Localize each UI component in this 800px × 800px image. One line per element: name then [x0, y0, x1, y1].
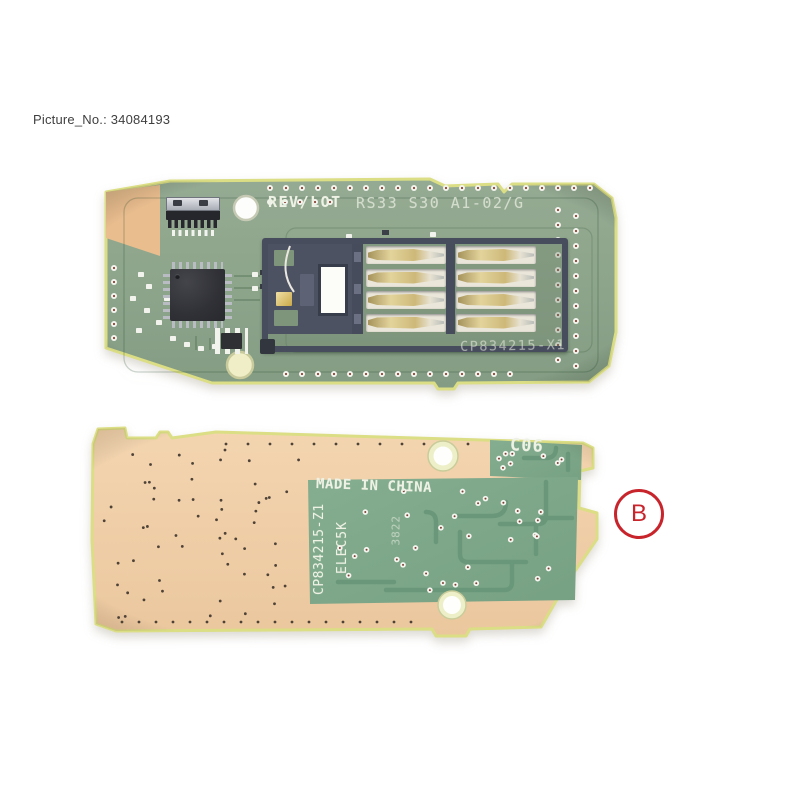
silkscreen-rev-lot-value: RS33 S30 A1-02/G	[356, 194, 525, 212]
contact-spring	[368, 249, 444, 261]
fpc-connector-pins	[168, 220, 218, 228]
silkscreen-part-number-back: CP834215-Z1	[312, 475, 330, 595]
screw-hole	[234, 196, 258, 220]
rail-notch	[354, 314, 361, 324]
sim-contact	[366, 291, 446, 309]
fpc-connector-pads	[172, 230, 214, 236]
sim-connector-rail	[446, 244, 455, 334]
contact-spring	[368, 294, 444, 306]
contact-spring	[368, 317, 444, 329]
connector-window	[318, 264, 348, 316]
chip-pin1-marker	[175, 274, 180, 279]
rail-notch	[354, 252, 361, 262]
sim-contact	[366, 269, 446, 287]
annotation-circle-b: B	[614, 489, 664, 539]
fpc-connector	[166, 197, 220, 239]
fpc-connector-shield	[166, 197, 220, 211]
sim-contact	[366, 314, 446, 332]
fpc-slot	[199, 200, 208, 206]
sim-contact	[456, 291, 536, 309]
silkscreen-corner-code: C06	[509, 435, 544, 457]
fpc-connector-body	[166, 211, 220, 220]
qfp-chip	[163, 262, 232, 328]
product-photo: Picture_No.: 34084193	[0, 0, 800, 800]
back-board-photo: C06 MADE IN CHINA CP834215-Z1 ELEC5K 382…	[86, 420, 600, 642]
fpc-slot	[173, 200, 182, 206]
sim-connector-left-bay	[268, 244, 352, 334]
screw-hole	[227, 352, 253, 378]
picture-number-label: Picture_No.: 34084193	[33, 112, 170, 127]
contact-spring	[458, 294, 534, 306]
contact-spring	[458, 317, 534, 329]
silkscreen-spec-code: ELEC5K	[335, 494, 351, 574]
screw-hole-bore	[434, 447, 453, 466]
chip-pins	[224, 271, 232, 319]
sim-contact	[456, 269, 536, 287]
chip-pins	[172, 320, 223, 328]
contact-spring	[458, 249, 534, 261]
sim-card-connector	[262, 238, 568, 352]
connector-foot	[260, 339, 275, 354]
gold-contact-pad	[276, 292, 292, 306]
sot-body	[221, 333, 242, 349]
front-board-photo: REV/LOT RS33 S30 A1-02/G CP834215-X1	[100, 176, 622, 394]
silkscreen-date-code: 3822	[390, 502, 403, 546]
screw-hole-bore	[443, 596, 461, 614]
sim-contact	[366, 246, 446, 264]
sot-component	[215, 328, 248, 354]
rail-notch	[354, 284, 361, 294]
contact-spring	[368, 272, 444, 284]
annotation-label: B	[631, 500, 647, 528]
sim-contact	[456, 246, 536, 264]
contact-spring	[458, 272, 534, 284]
sim-contact	[456, 314, 536, 332]
sim-connector-rail	[352, 244, 363, 334]
silkscreen-rev-lot-label: REV/LOT	[268, 193, 342, 211]
silkscreen-part-number-front: CP834215-X1	[460, 337, 566, 355]
